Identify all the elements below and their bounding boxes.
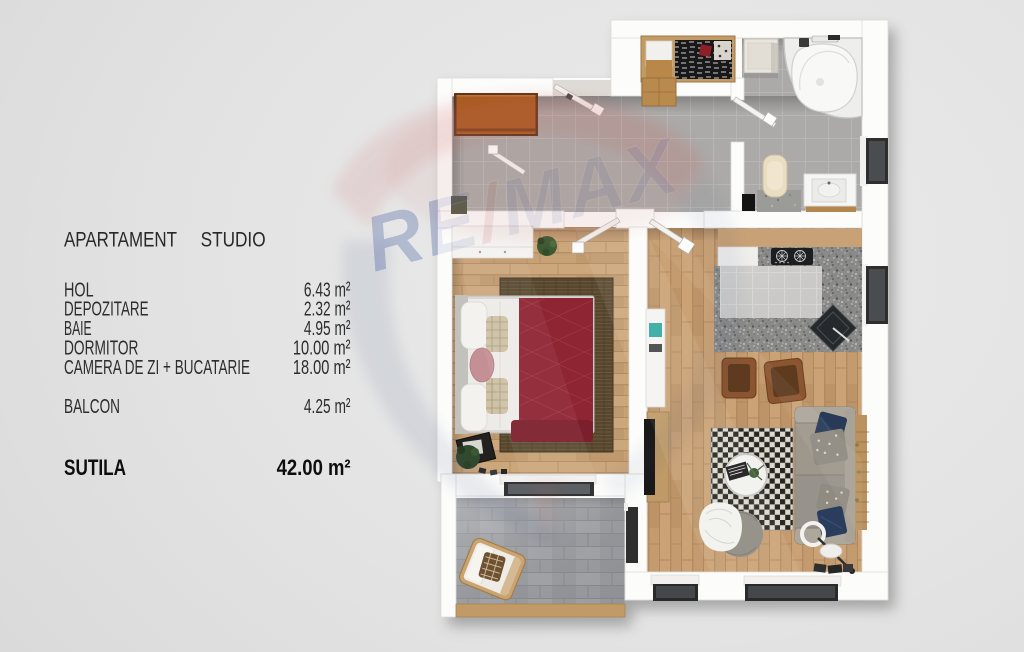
- svg-text:STUDIO: STUDIO: [201, 227, 266, 252]
- svg-text:4.25 m²: 4.25 m²: [304, 395, 351, 418]
- svg-text:APARTAMENT: APARTAMENT: [64, 227, 177, 252]
- svg-text:CAMERA DE ZI + BUCATARIE: CAMERA DE ZI + BUCATARIE: [64, 356, 250, 379]
- svg-text:18.00 m²: 18.00 m²: [293, 356, 351, 379]
- svg-text:SUTILA: SUTILA: [64, 455, 126, 480]
- svg-text:42.00 m²: 42.00 m²: [277, 455, 351, 480]
- svg-text:BALCON: BALCON: [64, 395, 120, 418]
